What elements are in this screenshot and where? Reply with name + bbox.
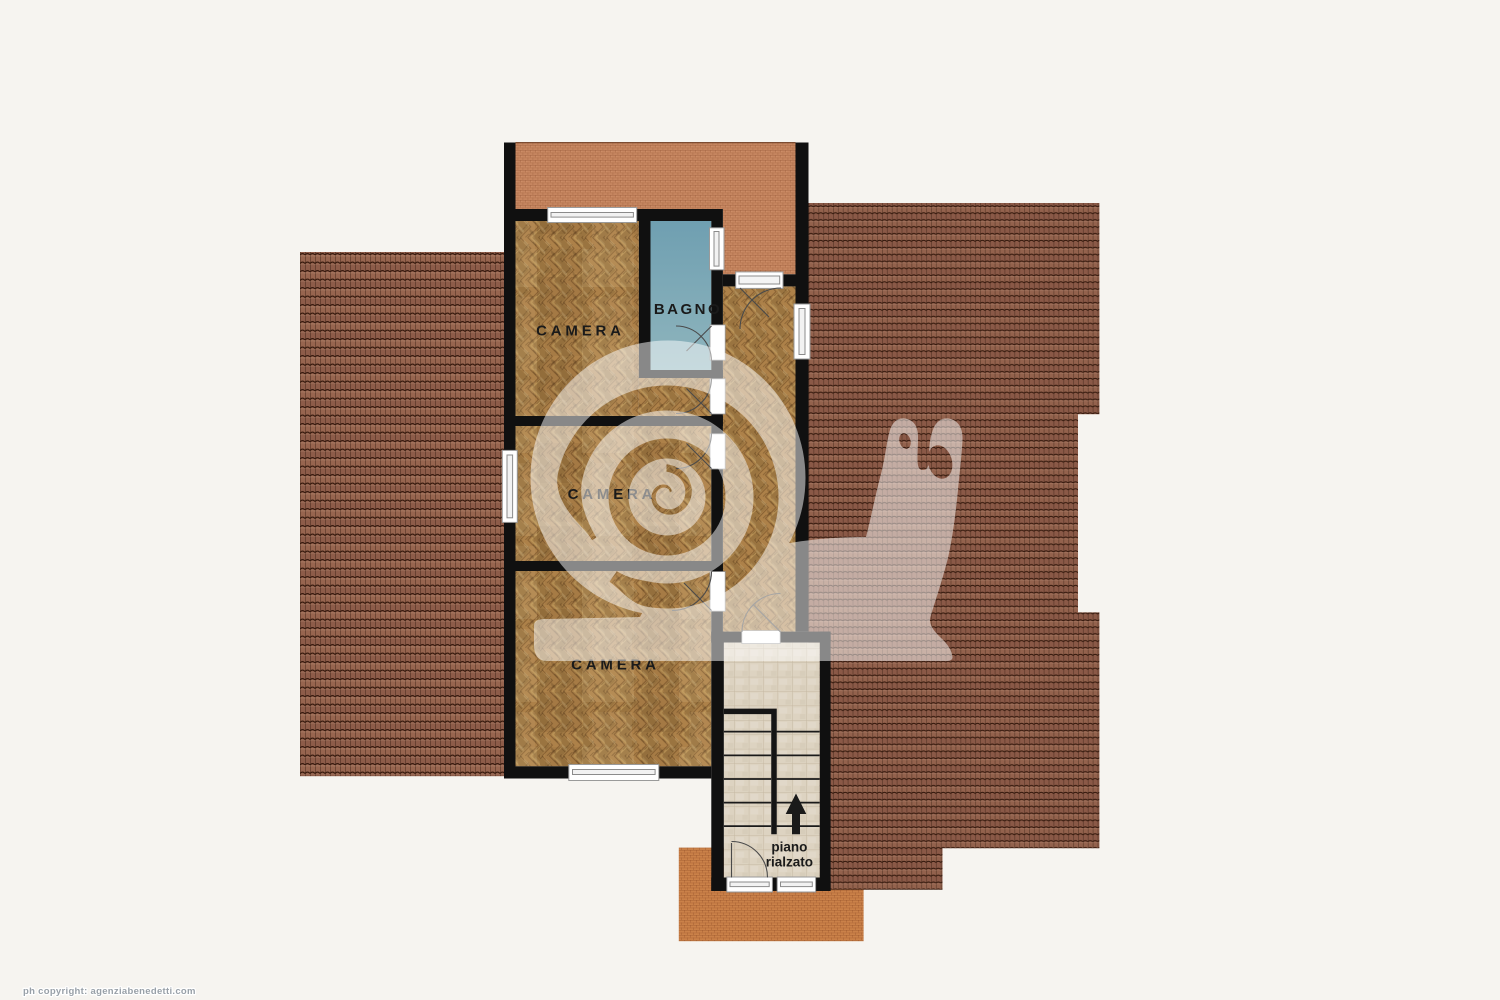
svg-text:ph copyright: agenziabenedetti: ph copyright: agenziabenedetti.com — [23, 986, 196, 997]
